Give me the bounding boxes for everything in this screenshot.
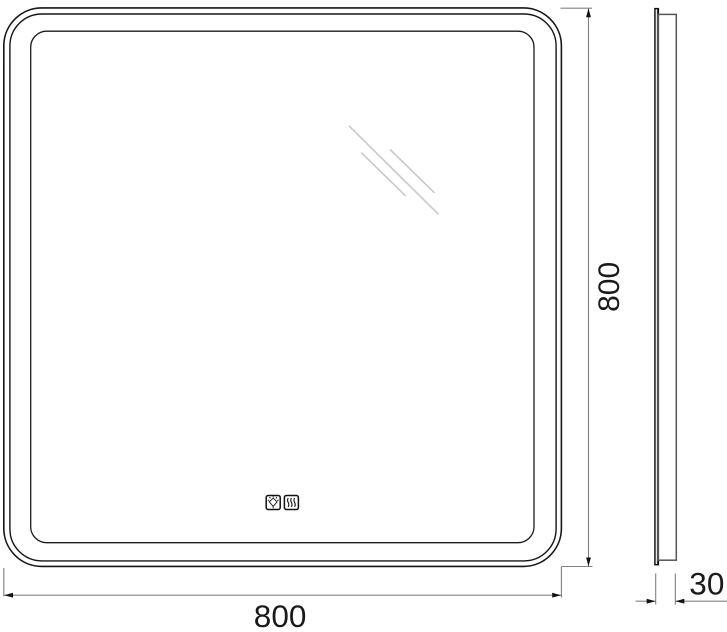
svg-text:800: 800 <box>593 262 626 312</box>
svg-text:800: 800 <box>254 598 307 632</box>
svg-text:30: 30 <box>689 566 724 602</box>
